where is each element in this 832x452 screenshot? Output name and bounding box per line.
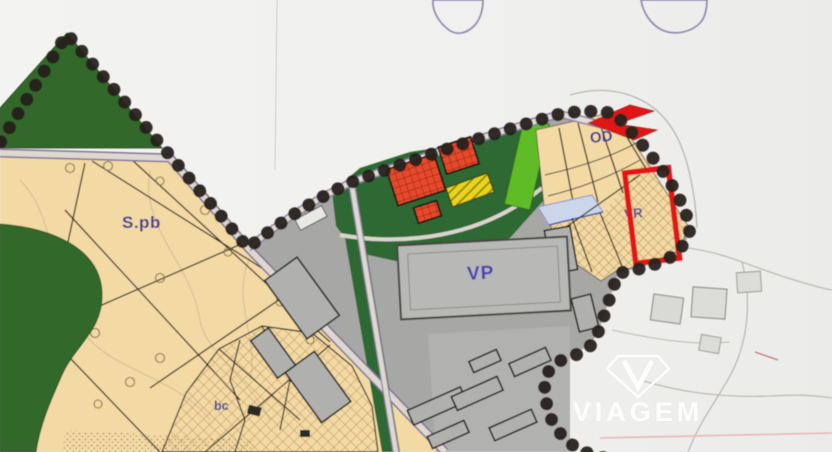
zone-label-spb: S.pb [122, 213, 161, 232]
zone-label-bc: bc [214, 399, 229, 413]
zoning-map-canvas: OD VR [0, 0, 832, 452]
viagem-wordmark: VIAGEM [573, 397, 704, 427]
vp-building-block: VP [397, 237, 571, 320]
zoning-map-screenshot: OD VR [0, 0, 832, 452]
zone-label-vp: VP [467, 262, 495, 284]
